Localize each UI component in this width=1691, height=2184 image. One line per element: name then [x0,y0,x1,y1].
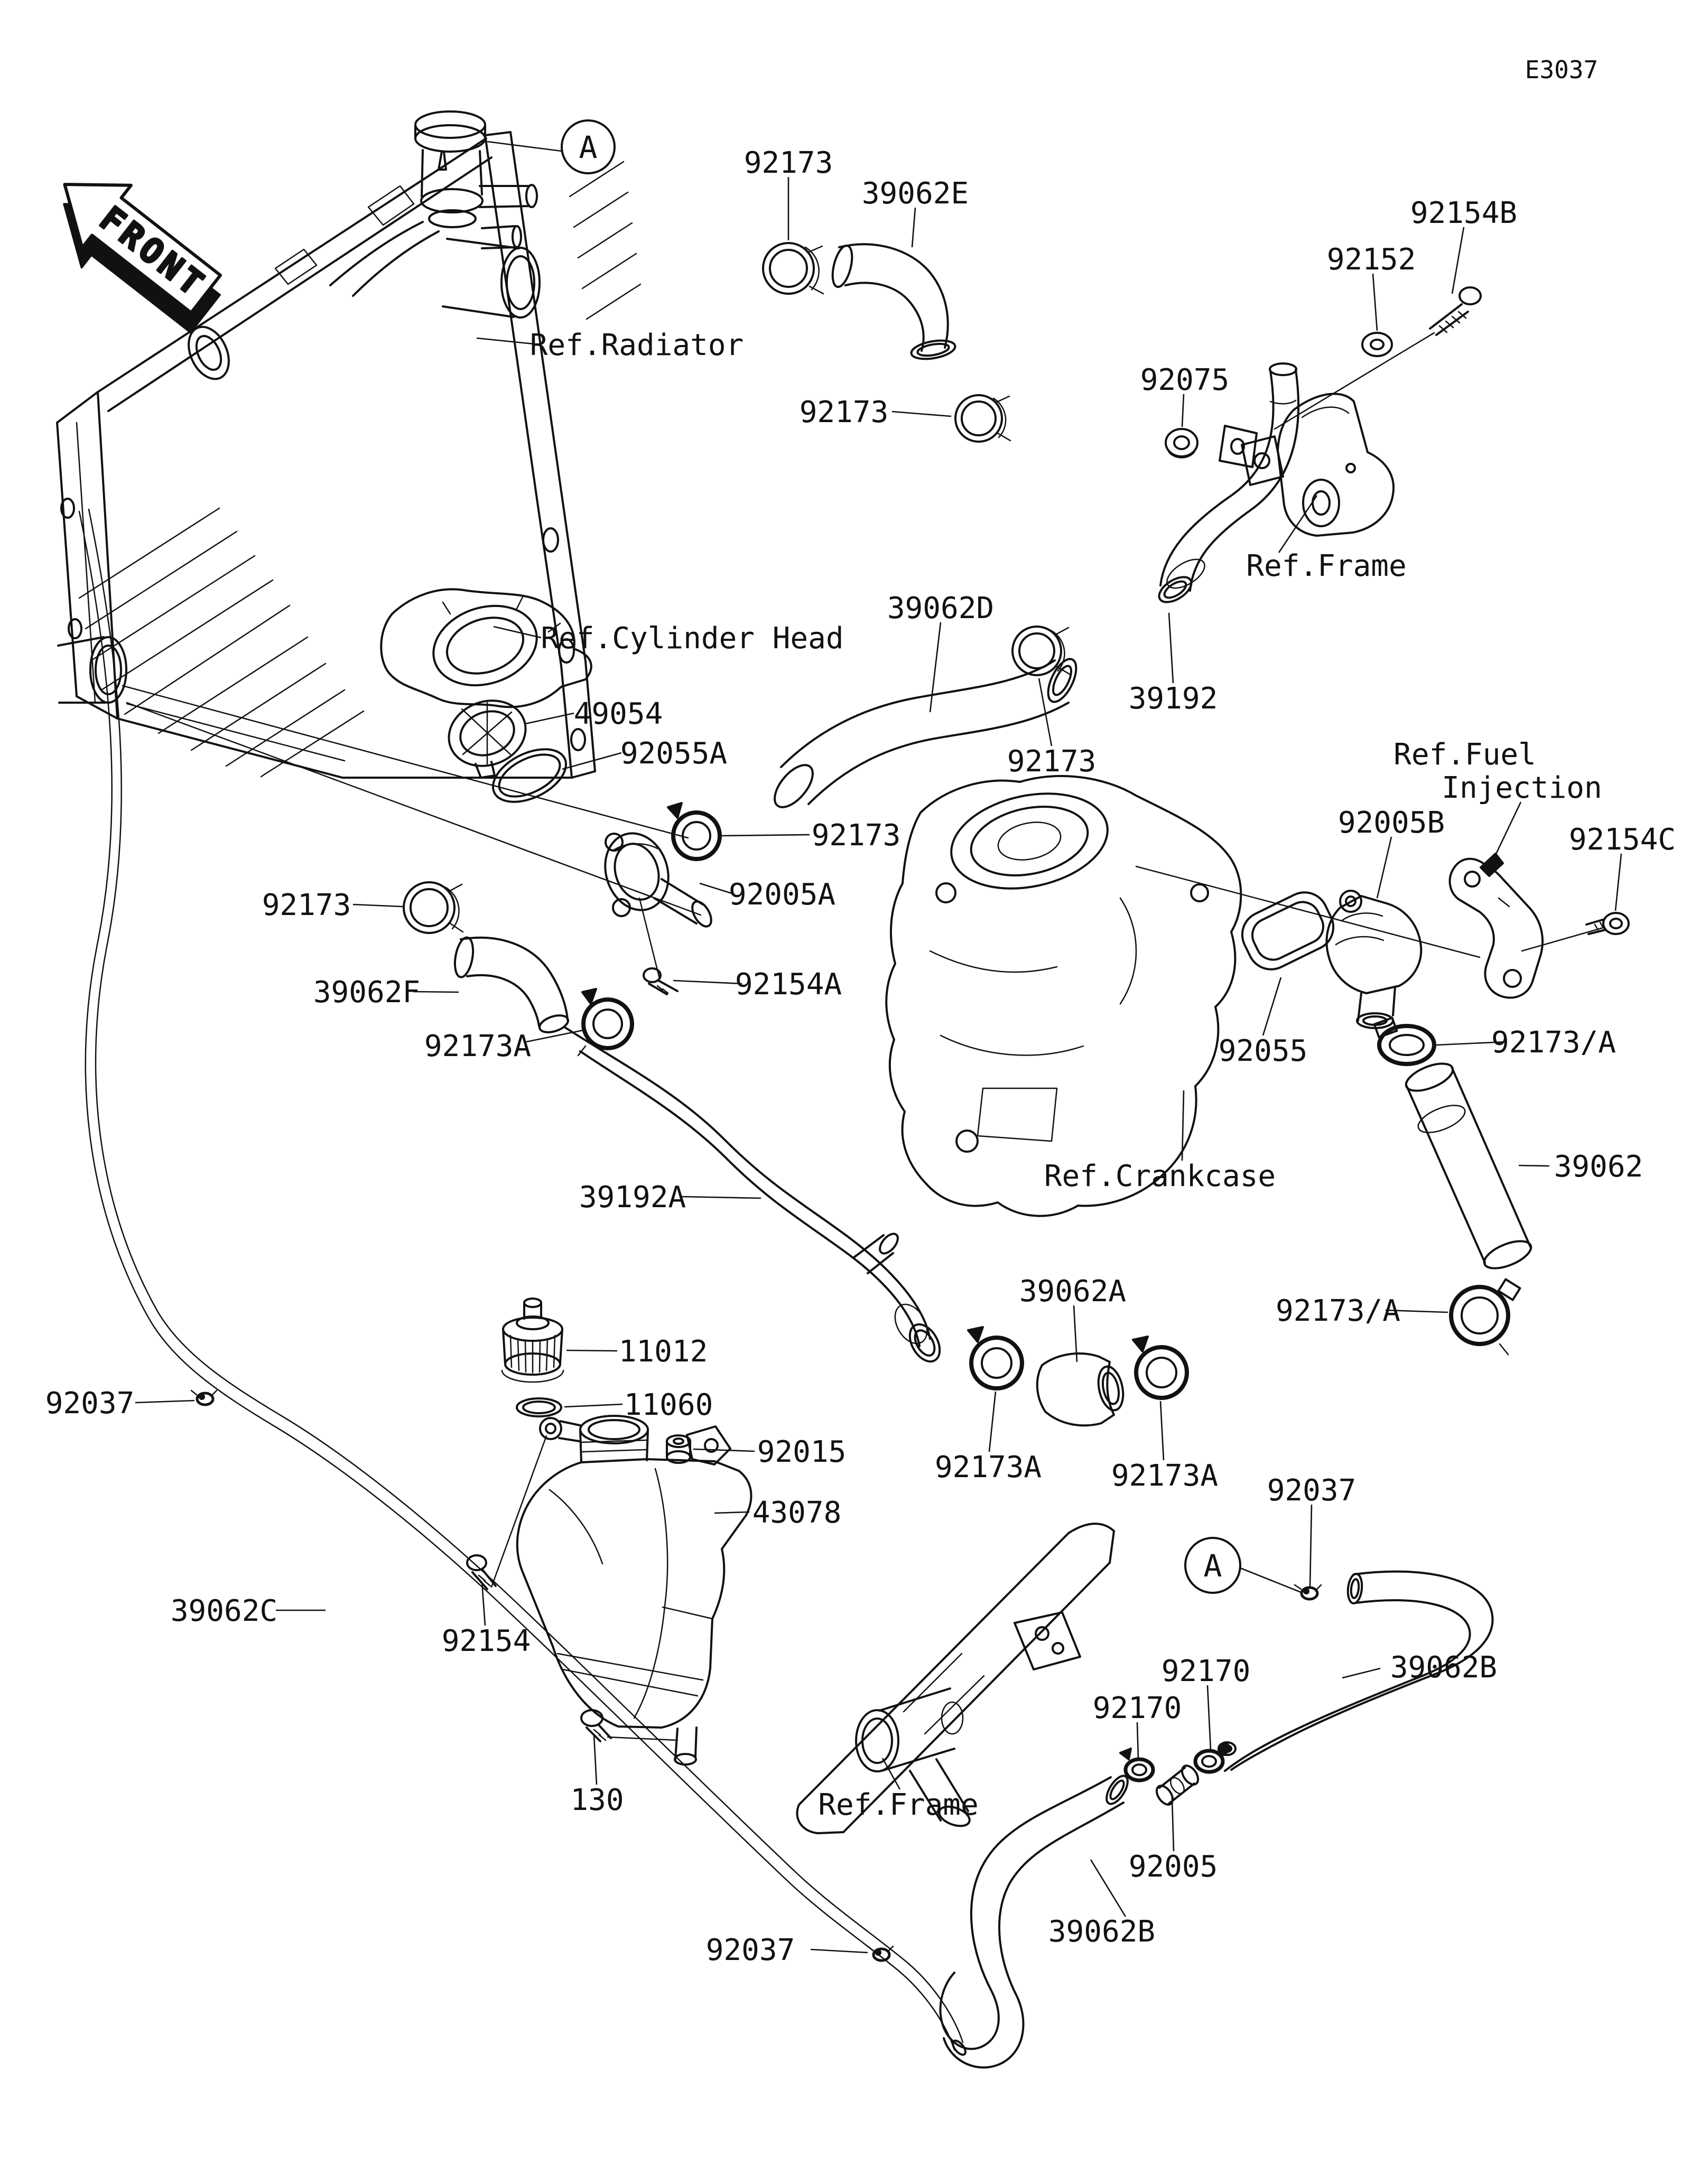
part-label-92154a: 92154A [735,967,842,1002]
part-label-39192a: 39192A [579,1180,686,1215]
overflow-stub [526,185,537,207]
part-label-92173a: 92173A [935,1450,1042,1485]
leader-line [566,1350,617,1351]
part-label-92173: 92173 [744,146,833,180]
ref-label-refframe: Ref.Frame [818,1788,978,1822]
part-label-injection: Injection [1442,771,1602,805]
front-direction-sign: FRONT [31,153,239,344]
clamp-92173slashA-bottom [1451,1279,1520,1355]
leader-line [1137,1722,1138,1758]
nut-92015 [667,1435,690,1463]
leader-line [1091,1860,1126,1917]
ref-label-refframe: Ref.Frame [1246,549,1406,583]
part-label-92037: 92037 [706,1933,795,1967]
gasket-11060-drawing [517,1398,561,1416]
part-label-92173: 92173 [800,395,889,430]
diagram-canvas: FRONT [0,0,1691,2184]
part-label-39192: 39192 [1129,682,1218,716]
parts-diagram-page: FRONT [0,0,1691,2184]
leader-line [673,981,742,984]
clip-92037-left [191,1390,217,1405]
grommet-92075 [1166,429,1197,458]
leader-line [1240,1568,1301,1592]
oring-92055a-drawing [485,739,574,813]
leader-line [487,142,562,151]
hose-39062f-drawing [452,936,570,1035]
leader-line [564,1404,622,1407]
page-code: E3037 [1525,55,1598,84]
part-label-43078: 43078 [752,1496,842,1530]
part-label-39062c: 39062C [171,1594,277,1628]
leader-line [1172,1798,1174,1851]
leader-line [681,1197,761,1198]
part-label-92173a: 92173A [424,1029,531,1063]
fi-bracket-drawing [1450,854,1543,997]
fitting-92005b-drawing [1326,891,1421,1028]
marker-letter-a: A [579,129,598,165]
bolt-92154a [639,898,677,994]
leader-line [912,208,915,247]
part-label-92055a: 92055A [620,736,727,771]
frame-bottom-drawing [797,1524,1114,1833]
part-label-39062: 39062 [1554,1150,1643,1184]
leader-line [811,1949,868,1953]
part-label-92005b: 92005B [1338,806,1445,840]
hose-39062d-drawing [768,655,1082,814]
leader-line [1182,394,1184,427]
clamp-92173-left [404,882,463,933]
clamp-92173a-bottom-right [1133,1337,1187,1398]
clamp-92173a-bottom-left [968,1327,1022,1388]
leader-line [1452,227,1464,294]
leader-line [721,835,810,836]
part-label-92154c: 92154C [1569,823,1676,857]
bolt-92154 [467,1436,546,1589]
clamp-92173-top [763,243,823,294]
cap-11012-drawing [502,1299,563,1382]
part-label-11060: 11060 [624,1388,713,1422]
part-label-130: 130 [570,1783,624,1817]
frame-top-drawing [1242,394,1393,536]
leader-line [1519,1165,1549,1166]
part-label-39062b: 39062B [1390,1650,1497,1685]
part-label-92170: 92170 [1162,1654,1251,1688]
ref-label-reffuel: Ref.Fuel [1393,738,1536,772]
leader-line [1377,837,1391,898]
part-label-39062a: 39062A [1019,1274,1126,1309]
hose-39062a-drawing [1037,1354,1127,1425]
leader-line [1487,802,1521,873]
part-label-92075: 92075 [1140,363,1230,397]
part-label-92005: 92005 [1129,1850,1218,1884]
hose-39062e-drawing [829,244,956,362]
part-label-92154b: 92154B [1410,196,1517,230]
part-label-92173: 92173 [1007,744,1097,779]
part-label-92173a: 92173/A [1276,1294,1400,1328]
leader-line [1310,1505,1312,1587]
part-label-92037: 92037 [45,1386,135,1421]
leader-line [892,412,951,416]
leader-line [930,622,941,712]
part-label-92037: 92037 [1267,1473,1356,1508]
part-label-49054: 49054 [574,697,663,731]
gasket-92055-drawing [1234,884,1341,977]
clamp-92173-third [1012,627,1070,675]
part-label-92015: 92015 [757,1435,847,1469]
labels-layer: 9217339062E92154B9215292075Ref.FrameRef.… [45,120,1676,1967]
leader-line [1160,1401,1164,1460]
part-label-92173a: 92173A [1111,1459,1218,1493]
part-label-39062d: 39062D [887,591,994,626]
clamp-92173a-mid [578,989,632,1056]
part-label-39062b: 39062B [1048,1915,1155,1949]
leader-line [714,1512,749,1513]
part-label-92173: 92173 [262,888,351,922]
leader-line [989,1392,996,1452]
leader-line [1342,1668,1380,1678]
part-label-39062e: 39062E [862,176,969,211]
part-label-92154: 92154 [442,1624,531,1658]
ref-label-refcylinderhead: Ref.Cylinder Head [541,621,843,656]
part-label-11012: 11012 [619,1334,708,1369]
clamp-92173-second [955,395,1010,442]
leader-line [1207,1685,1211,1750]
part-label-92173a: 92173/A [1491,1025,1616,1060]
part-label-92005a: 92005A [729,878,835,912]
marker-letter-a: A [1204,1548,1222,1584]
part-label-92152: 92152 [1327,242,1416,277]
leader-line [1169,613,1173,683]
leader-line [1263,977,1281,1035]
reserve-tank-43078-drawing [517,1416,751,1765]
bolt-92154b [1275,287,1481,429]
leader-line [135,1401,194,1403]
leader-line [1373,274,1377,331]
collar-92152 [1362,333,1392,356]
clamp-92173-fourth [668,803,720,859]
ref-label-refcrankcase: Ref.Crankcase [1044,1159,1276,1193]
leader-line [353,904,403,907]
part-label-92173: 92173 [812,818,901,853]
leader-line [1615,854,1621,911]
part-label-39062f: 39062F [313,975,420,1010]
part-label-92055: 92055 [1219,1034,1308,1068]
bolt-130 [581,1710,677,1741]
leader-line [594,1735,597,1785]
part-label-92170: 92170 [1093,1691,1182,1725]
ref-label-refradiator: Ref.Radiator [530,328,744,362]
leader-line [693,1449,755,1451]
hose-39062-drawing [1402,1058,1535,1274]
